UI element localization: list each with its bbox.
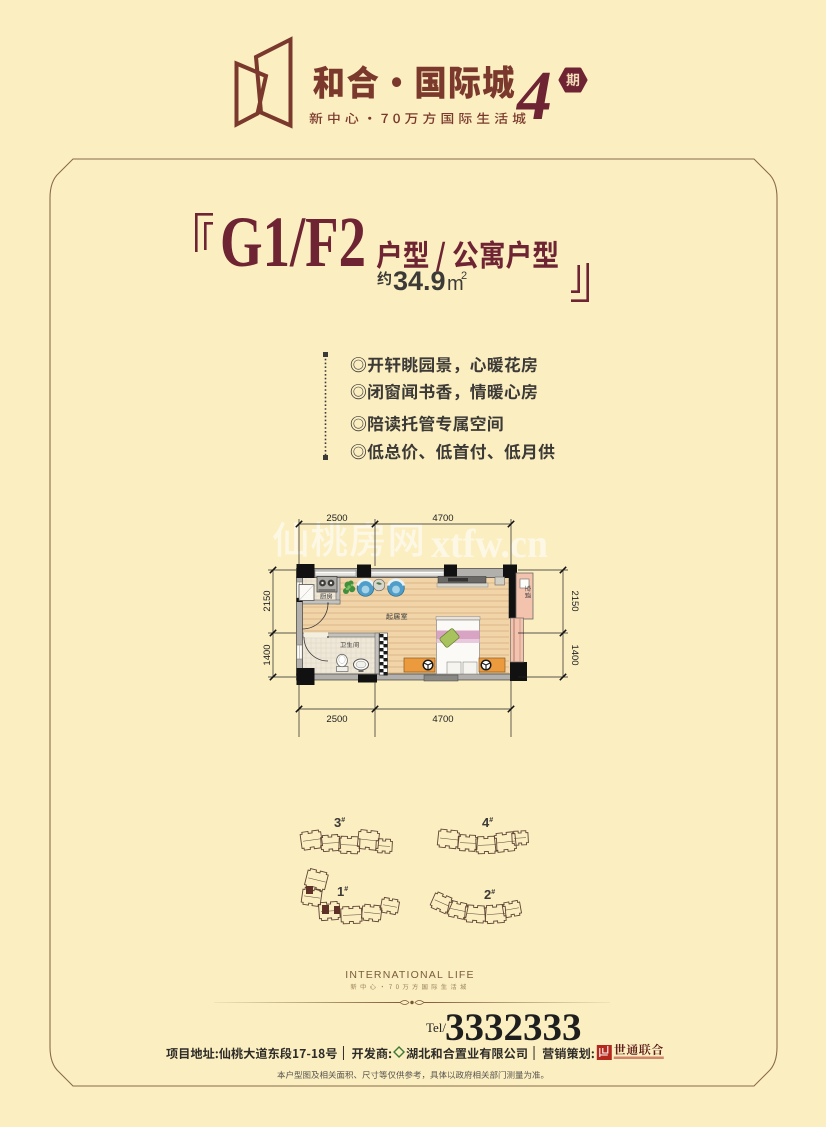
svg-text:4#: 4# <box>482 815 493 830</box>
svg-text:2: 2 <box>461 270 467 282</box>
svg-text:2500: 2500 <box>326 714 347 725</box>
svg-text:1#: 1# <box>337 884 348 899</box>
svg-text:34.9: 34.9 <box>393 266 446 296</box>
svg-text:2150: 2150 <box>262 590 273 611</box>
svg-text:4700: 4700 <box>432 513 453 524</box>
svg-text:xtfw.cn: xtfw.cn <box>431 521 548 566</box>
svg-text:3#: 3# <box>334 815 345 830</box>
svg-text:2500: 2500 <box>326 513 347 524</box>
svg-text:2#: 2# <box>484 887 495 902</box>
svg-text:INTERNATIONAL LIFE: INTERNATIONAL LIFE <box>345 969 475 981</box>
svg-text:4700: 4700 <box>432 714 453 725</box>
svg-text:Tel/: Tel/ <box>426 1020 446 1035</box>
svg-text:3332333: 3332333 <box>445 1006 582 1049</box>
svg-text:1400: 1400 <box>569 644 580 665</box>
svg-text:G1/F2: G1/F2 <box>220 202 366 282</box>
svg-text:1400: 1400 <box>262 644 273 665</box>
svg-text:2150: 2150 <box>569 590 580 611</box>
